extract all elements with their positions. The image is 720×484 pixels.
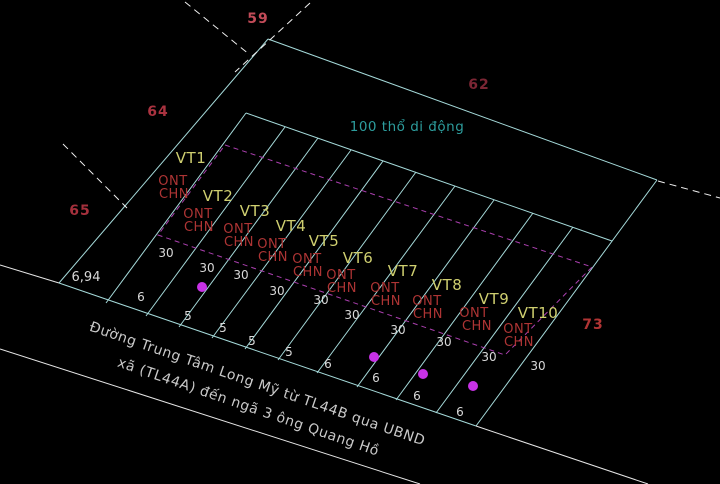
adjacent-plot-number-65: 65: [69, 203, 90, 219]
frontage-dim-vt4: 5: [248, 334, 256, 348]
cadastral-plan-stage: 5962646573VT1ONTCHN306VT2ONTCHN305VT3ONT…: [0, 0, 720, 484]
parcel-label-vt6: VT6: [343, 249, 373, 267]
frontage-dim-vt8: 6: [413, 389, 421, 403]
land-use-label-vt10: CHN: [504, 335, 534, 350]
survey-marker-dot: [418, 369, 428, 379]
survey-marker-dot: [468, 381, 478, 391]
parcel-label-vt4: VT4: [276, 217, 306, 235]
frontage-dim-vt5: 5: [285, 345, 293, 359]
land-use-label-vt7: CHN: [371, 294, 401, 309]
parcel-label-vt1: VT1: [176, 149, 206, 167]
adjacent-plot-number-62: 62: [468, 77, 489, 93]
parcel-label-vt3: VT3: [240, 202, 270, 220]
frontage-dim-vt6: 6: [324, 357, 332, 371]
land-use-label-vt1: CHN: [159, 187, 189, 202]
survey-marker-dot: [369, 352, 379, 362]
area-note-label: 100 thổ di động: [350, 118, 465, 135]
parcel-label-vt5: VT5: [309, 232, 339, 250]
parcel-label-vt2: VT2: [203, 187, 233, 205]
depth-dim-vt10: 30: [530, 359, 545, 373]
frontage-dim-vt2: 5: [184, 309, 192, 323]
depth-dim-vt3: 30: [233, 268, 248, 282]
land-use-label-vt2: CHN: [184, 220, 214, 235]
adjacent-plot-number-64: 64: [147, 104, 168, 120]
depth-dim-vt8: 30: [436, 335, 451, 349]
land-use-label-vt9: CHN: [462, 319, 492, 334]
land-use-label-vt4: CHN: [258, 250, 288, 265]
land-use-label-vt8: CHN: [413, 307, 443, 322]
parcel-label-vt7: VT7: [388, 262, 418, 280]
parcel-label-vt8: VT8: [432, 276, 462, 294]
adjacent-plot-number-73: 73: [582, 317, 603, 333]
adjacent-plot-number-59: 59: [247, 11, 268, 27]
edge-dimension-label: 6,94: [72, 270, 101, 285]
depth-dim-vt1: 30: [158, 246, 173, 260]
cadastral-plan-drawing: 5962646573VT1ONTCHN306VT2ONTCHN305VT3ONT…: [0, 0, 720, 484]
parcel-label-vt10: VT10: [518, 304, 559, 322]
depth-dim-vt2: 30: [199, 261, 214, 275]
land-use-label-vt6: CHN: [327, 281, 357, 296]
frontage-dim-vt9: 6: [456, 405, 464, 419]
depth-dim-vt7: 30: [390, 323, 405, 337]
depth-dim-vt9: 30: [481, 350, 496, 364]
frontage-dim-vt1: 6: [137, 290, 145, 304]
land-use-label-vt5: CHN: [293, 265, 323, 280]
frontage-dim-vt7: 6: [372, 371, 380, 385]
depth-dim-vt6: 30: [344, 308, 359, 322]
depth-dim-vt4: 30: [269, 284, 284, 298]
survey-marker-dot: [197, 282, 207, 292]
frontage-dim-vt3: 5: [219, 321, 227, 335]
land-use-label-vt3: CHN: [224, 235, 254, 250]
